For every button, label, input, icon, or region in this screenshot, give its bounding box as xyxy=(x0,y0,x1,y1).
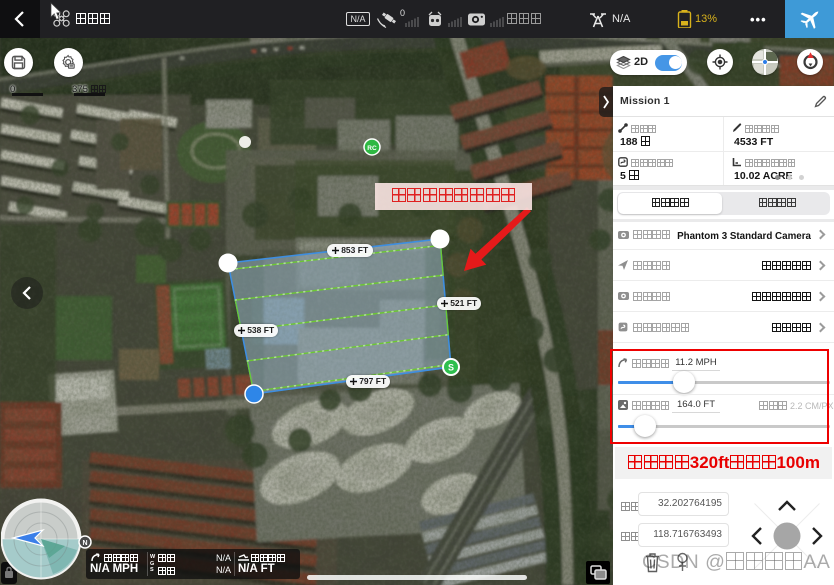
svg-text:RC: RC xyxy=(367,145,377,152)
svg-text:S: S xyxy=(448,363,454,373)
svg-text:N: N xyxy=(82,540,87,547)
